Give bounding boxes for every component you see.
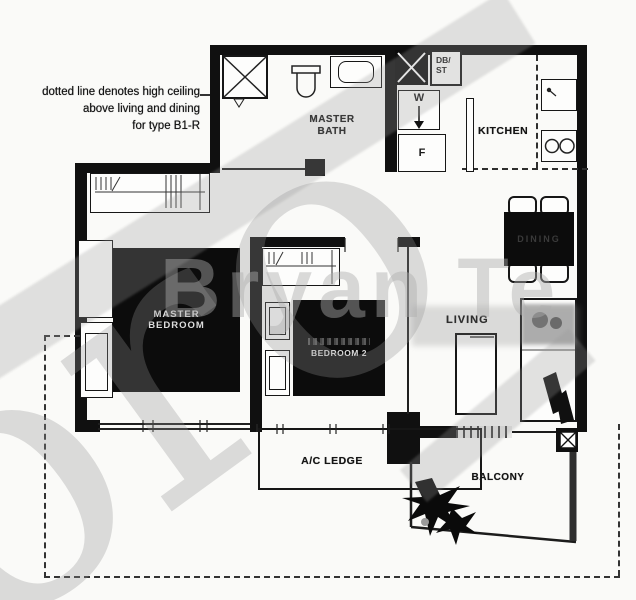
high-ceiling-dashed-right xyxy=(618,424,620,576)
label-dining: DINING xyxy=(517,234,561,244)
wall-bath-door-post xyxy=(305,159,325,176)
shaft-box xyxy=(395,50,428,85)
kitchen-counter-dashed-line xyxy=(536,55,538,168)
high-ceiling-dashed-left xyxy=(44,335,46,578)
masterbed-window-line-inner xyxy=(98,428,250,430)
masterbed-window-line-outer xyxy=(98,423,250,425)
note-line-1: dotted line denotes high ceiling xyxy=(8,84,200,101)
note-line-2: above living and dining xyxy=(8,101,200,118)
masterbed-side-table-inner xyxy=(85,333,108,391)
bedroom2-wardrobe xyxy=(262,248,340,286)
label-master-bath: MASTER BATH xyxy=(303,114,361,137)
note-line-3: for type B1-R xyxy=(8,118,200,135)
high-ceiling-dashed-top-stub xyxy=(44,335,80,337)
shower-stall xyxy=(222,55,268,99)
kitchen-closet-wall xyxy=(466,98,474,172)
washer-box: W xyxy=(398,90,440,130)
wall-bedroom2-top xyxy=(250,237,345,247)
label-bedroom2: BEDROOM 2 xyxy=(311,348,367,358)
label-washer: W xyxy=(414,92,424,104)
wall-masterbed-bottom-post xyxy=(75,420,100,432)
wall-bedroom2-left xyxy=(250,237,262,432)
label-st: ST xyxy=(436,65,460,75)
wall-balcony-column xyxy=(556,428,578,452)
bedroom2-side-table-1-inner xyxy=(269,307,286,335)
label-ac-ledge: A/C LEDGE xyxy=(272,455,392,467)
wall-right xyxy=(577,45,587,432)
note-high-ceiling: dotted line denotes high ceiling above l… xyxy=(8,84,200,135)
dining-table: DINING xyxy=(504,212,574,266)
wall-bedroom2-top-right xyxy=(398,237,420,247)
bath-threshold-line xyxy=(222,168,305,170)
masterbed-dresser xyxy=(78,240,113,318)
kitchen-hob xyxy=(541,130,577,162)
master-bed-label-wrap: MASTER BEDROOM xyxy=(113,248,240,392)
label-balcony: BALCONY xyxy=(462,472,534,484)
label-master-bedroom: MASTER BEDROOM xyxy=(141,309,213,331)
bedroom2-bed-label-wrap: BEDROOM 2 xyxy=(293,300,385,396)
fridge-box: F xyxy=(398,134,446,172)
label-db: DB/ xyxy=(436,55,460,65)
label-kitchen: KITCHEN xyxy=(478,125,528,137)
wall-masterbed-top xyxy=(75,163,220,173)
high-ceiling-dashed-bottom xyxy=(44,576,620,578)
bedroom2-side-table-2-inner xyxy=(269,356,286,390)
label-fridge: F xyxy=(419,147,426,159)
masterbed-wardrobe xyxy=(90,173,210,213)
db-st-closet: DB/ ST xyxy=(430,50,462,86)
toilet-icon xyxy=(292,66,320,97)
shower-head-icon xyxy=(234,99,244,107)
wall-bedroom2-right-thin xyxy=(407,247,409,414)
kitchen-sink xyxy=(541,79,577,111)
bath-basin xyxy=(338,61,374,83)
floor-plan: dotted line denotes high ceiling above l… xyxy=(0,0,636,600)
kitchen-bottom-dashed-line xyxy=(462,168,588,170)
bedroom2-label-smudge xyxy=(308,338,370,345)
scan-smear xyxy=(412,306,580,346)
wall-bath-left xyxy=(210,45,220,172)
